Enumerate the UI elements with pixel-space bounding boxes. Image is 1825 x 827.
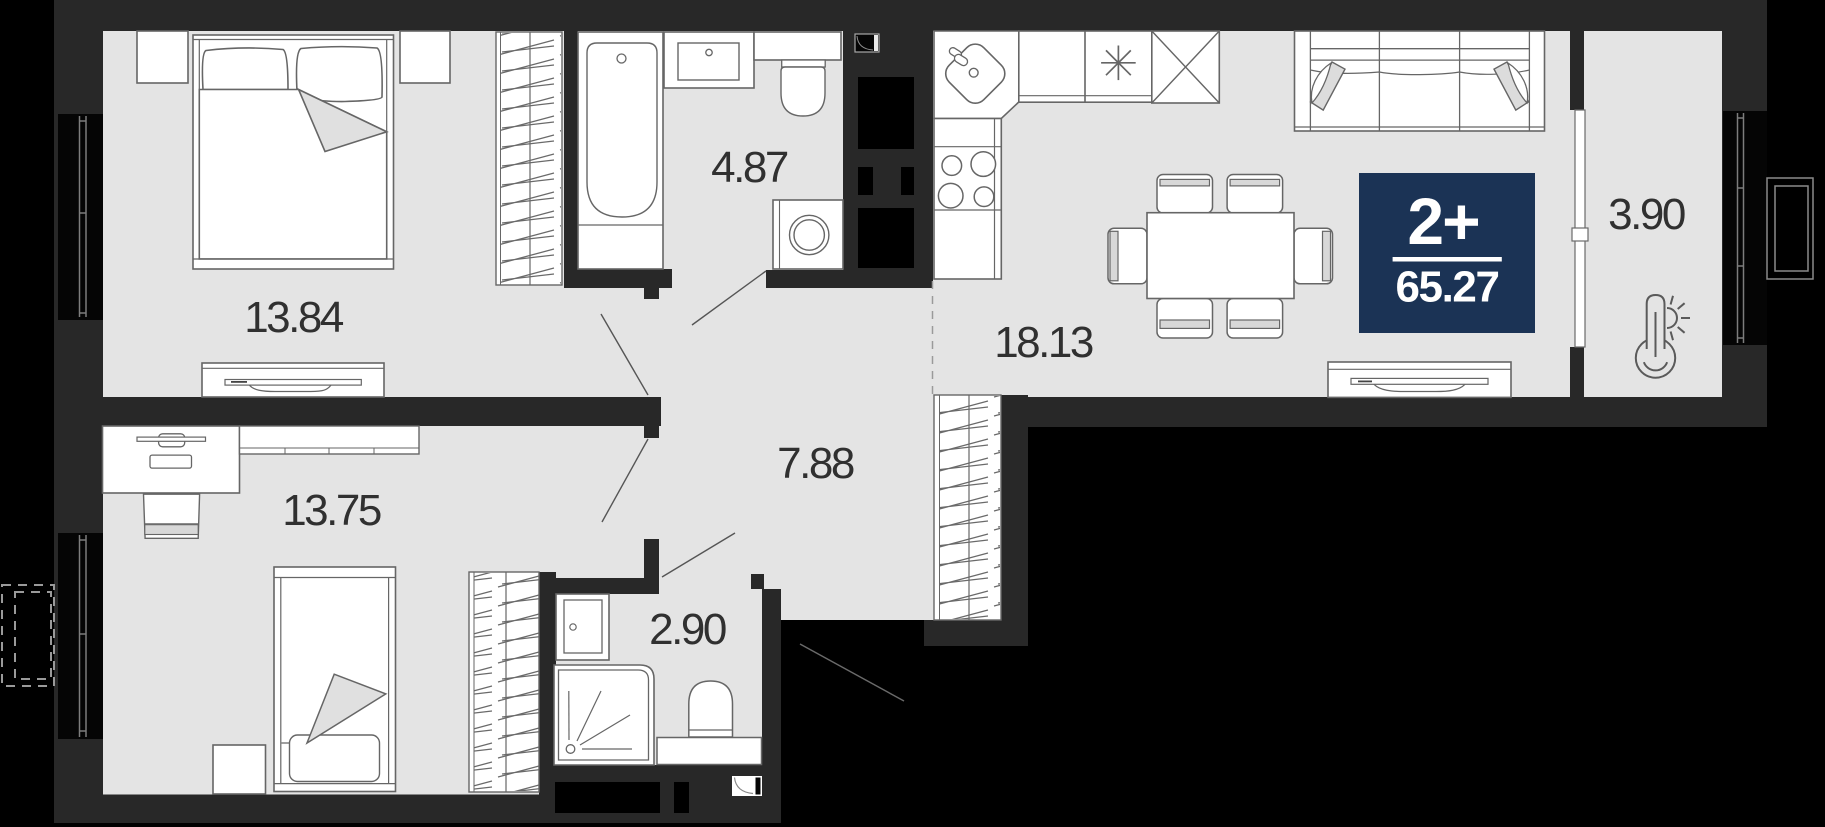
svg-text:18.13: 18.13 [994,318,1093,367]
svg-text:7.88: 7.88 [777,439,854,488]
svg-text:2+: 2+ [1407,184,1478,258]
svg-text:3.90: 3.90 [1608,190,1685,239]
svg-text:13.84: 13.84 [244,293,344,342]
svg-text:2.90: 2.90 [649,605,726,654]
svg-text:65.27: 65.27 [1395,263,1498,312]
svg-text:4.87: 4.87 [711,143,788,192]
svg-text:13.75: 13.75 [282,486,381,535]
